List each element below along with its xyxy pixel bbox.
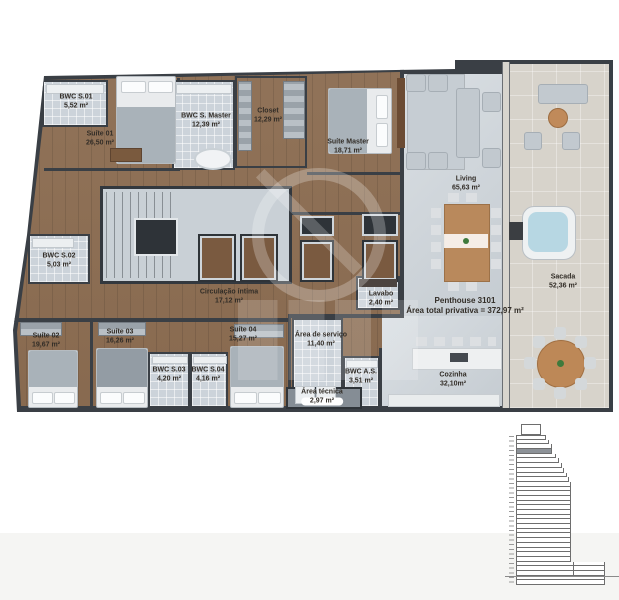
label-suite-master: Suíte Master18,71 m² xyxy=(327,139,369,156)
wall-suite02-03 xyxy=(90,320,93,408)
outdoor-sofa-icon xyxy=(538,84,588,104)
label-bwc-as: BWC A.S.3,51 m² xyxy=(345,369,377,386)
side-table-icon xyxy=(509,222,523,240)
bar-stools xyxy=(416,337,496,346)
label-bwc-s04: BWC S.044,16 m² xyxy=(191,367,224,384)
elevation-floor xyxy=(516,580,605,585)
outdoor-chair-icon xyxy=(562,132,580,150)
label-area-servico: Área de serviço11,40 m² xyxy=(295,332,347,349)
vanity-icon xyxy=(176,84,232,94)
kitchen-counter xyxy=(388,394,500,407)
armchair-icon xyxy=(406,152,426,170)
elevator-icon xyxy=(362,240,398,282)
duct-shaft xyxy=(300,216,334,236)
wardrobe-icon xyxy=(238,81,252,151)
stair-shaft xyxy=(134,218,178,256)
label-closet: Closet12,29 m² xyxy=(254,108,282,125)
wall-master-bottom xyxy=(307,172,402,175)
plant-icon xyxy=(463,238,469,244)
plant-icon xyxy=(557,360,564,367)
armchair-icon xyxy=(482,148,501,168)
wardrobe-icon xyxy=(283,81,305,139)
coffee-table-icon xyxy=(548,108,568,128)
label-bwc-s01: BWC S.015,52 m² xyxy=(59,94,92,111)
dining-chairs xyxy=(431,208,441,272)
label-suite-02: Suíte 0219,67 m² xyxy=(32,333,60,350)
elevation-ground-line xyxy=(505,576,619,577)
floorplan-canvas: BWC S.015,52 m² Suíte 0126,50 m² BWC S. … xyxy=(0,0,619,600)
dining-chairs xyxy=(491,208,501,272)
vanity-icon xyxy=(193,356,227,364)
outdoor-chair-icon xyxy=(524,132,542,150)
label-bwc-s02: BWC S.025,03 m² xyxy=(42,253,75,270)
bathtub-icon xyxy=(194,148,232,170)
armchair-icon xyxy=(428,152,448,170)
dining-chairs xyxy=(448,282,484,291)
tv-panel-icon xyxy=(397,78,405,148)
elevation-podium-divider xyxy=(573,562,574,576)
elevator-icon xyxy=(198,234,236,282)
elevator-icon xyxy=(300,240,334,282)
vanity-icon xyxy=(32,238,74,248)
elevator-icon xyxy=(240,234,278,282)
dining-chairs xyxy=(448,193,484,202)
building-elevation-rows xyxy=(516,435,605,585)
desk-icon xyxy=(110,148,142,162)
suite04-bed xyxy=(230,346,284,408)
suite03-bed xyxy=(96,348,148,408)
label-lavabo: Lavabo2,40 m² xyxy=(369,291,394,308)
hot-tub-icon xyxy=(522,206,576,260)
label-suite-03: Suíte 0316,26 m² xyxy=(106,329,134,346)
label-suite-04: Suíte 0415,27 m² xyxy=(229,327,257,344)
elevation-floor-ticks xyxy=(509,436,514,584)
building-elevation xyxy=(505,424,619,596)
label-bwc-s03: BWC S.034,20 m² xyxy=(152,367,185,384)
label-sacada: Sacada52,36 m² xyxy=(549,274,577,291)
lavabo-counter xyxy=(359,279,397,287)
label-cozinha: Cozinha32,10m² xyxy=(439,372,466,389)
label-area-tecnica: Área técnica2,97 m² xyxy=(301,389,343,406)
sofa-icon xyxy=(456,88,480,158)
vanity-icon xyxy=(346,360,378,368)
vanity-icon xyxy=(152,356,188,364)
label-living: Living65,63 m² xyxy=(452,176,480,193)
cooktop-icon xyxy=(450,353,468,362)
label-circulacao: Circulação íntima17,12 m² xyxy=(200,289,258,306)
label-penthouse: Penthouse 3101Área total privativa = 372… xyxy=(406,296,524,316)
armchair-icon xyxy=(482,92,501,112)
duct-shaft xyxy=(362,214,398,236)
wall-suite01-bottom xyxy=(44,168,180,171)
elevation-roof xyxy=(521,424,541,435)
label-suite-01: Suíte 0126,50 m² xyxy=(86,131,114,148)
vanity-icon xyxy=(46,84,104,94)
armchair-icon xyxy=(406,74,426,92)
armchair-icon xyxy=(428,74,448,92)
label-bwc-s-master: BWC S. Master12,39 m² xyxy=(181,113,231,130)
suite02-bed xyxy=(28,350,78,408)
